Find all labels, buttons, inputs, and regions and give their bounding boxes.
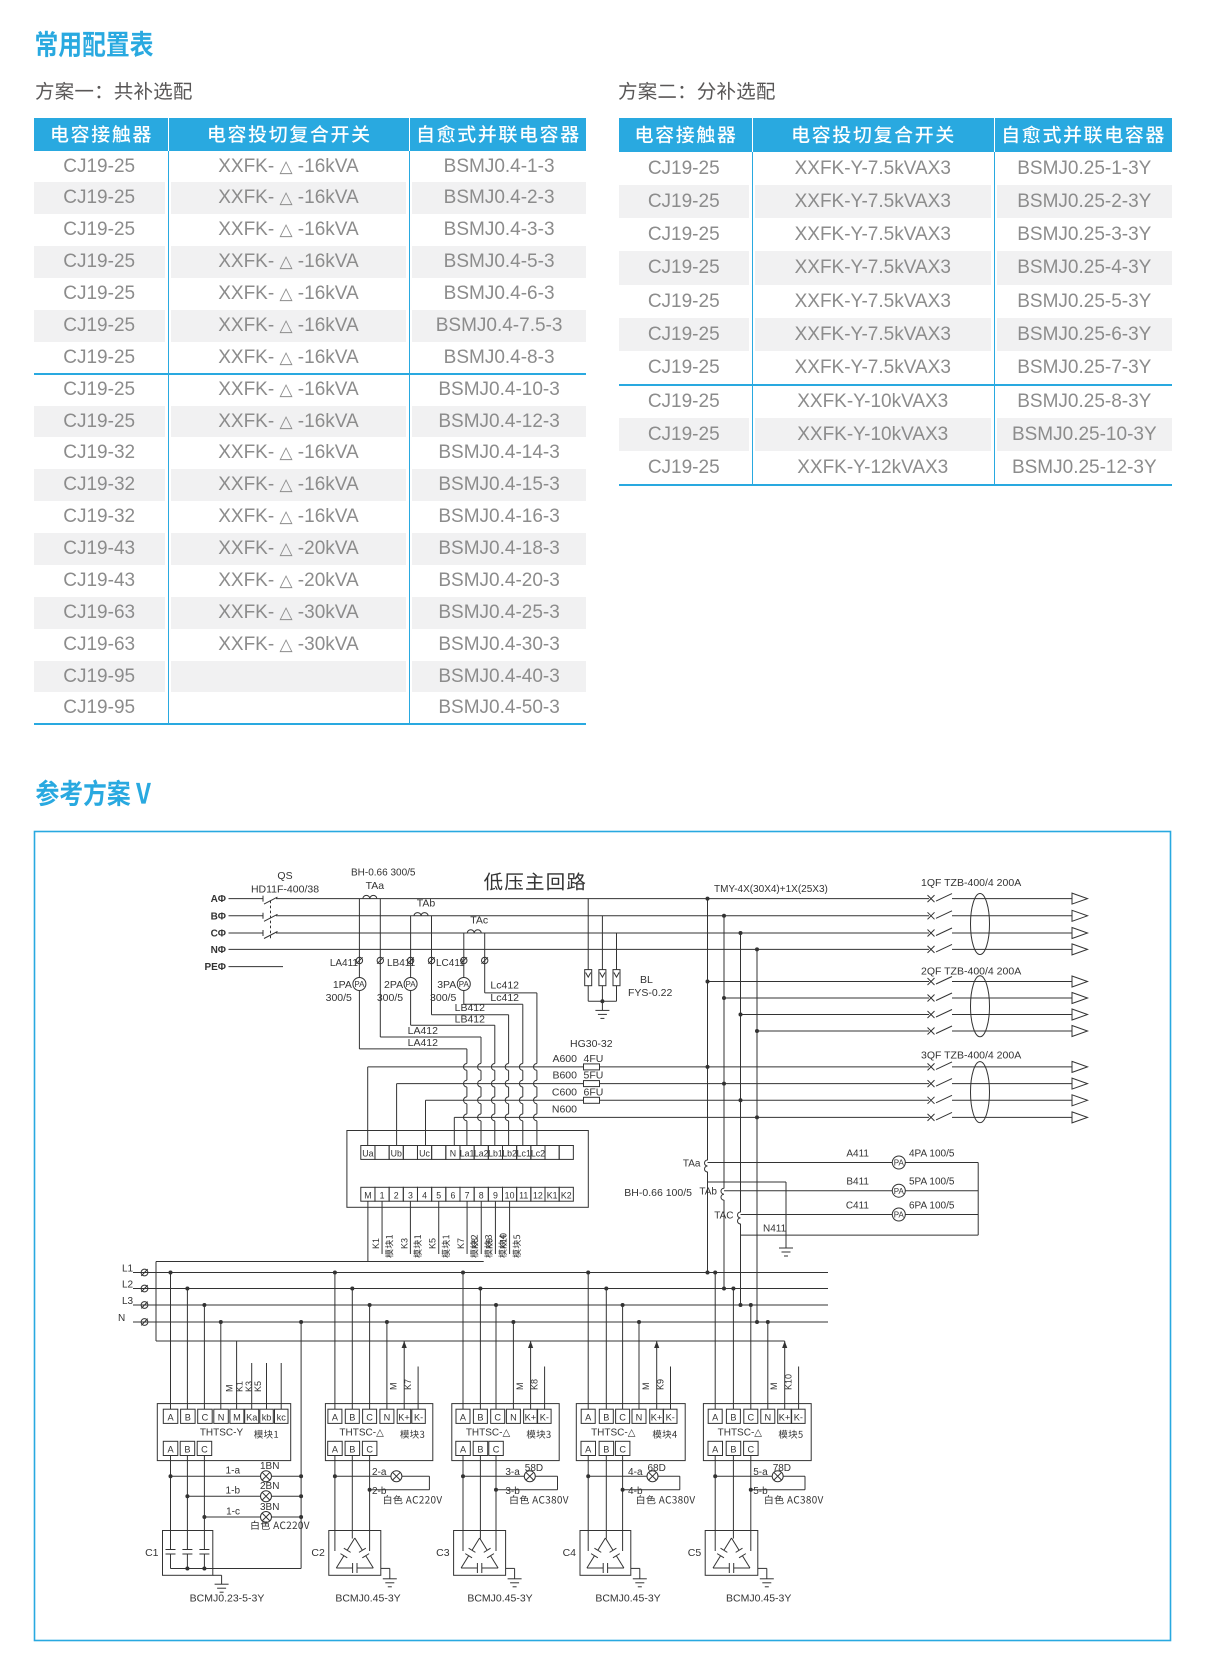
svg-text:HD11F-400/38: HD11F-400/38 (251, 884, 319, 896)
svg-text:LA412: LA412 (408, 1037, 439, 1049)
svg-text:2QF TZB-400/4 200A: 2QF TZB-400/4 200A (921, 966, 1021, 978)
svg-text:N: N (636, 1413, 643, 1423)
svg-text:C411: C411 (846, 1201, 870, 1212)
svg-text:K8: K8 (530, 1379, 540, 1390)
svg-text:A: A (460, 1413, 467, 1423)
svg-text:THTSC-△: THTSC-△ (718, 1428, 763, 1439)
svg-text:K+: K+ (779, 1413, 791, 1423)
svg-text:A: A (167, 1413, 174, 1423)
svg-text:C: C (747, 1413, 754, 1423)
svg-text:4: 4 (422, 1190, 427, 1200)
svg-text:K3: K3 (399, 1238, 409, 1249)
svg-text:300/5: 300/5 (377, 992, 403, 1004)
svg-text:K10: K10 (499, 1233, 509, 1249)
svg-text:C600: C600 (552, 1086, 577, 1098)
svg-text:1-b: 1-b (226, 1486, 241, 1497)
svg-text:N: N (510, 1413, 517, 1423)
svg-text:PA: PA (406, 980, 417, 989)
svg-text:PA: PA (894, 1187, 905, 1196)
svg-text:FYS-0.22: FYS-0.22 (628, 987, 673, 999)
svg-text:BH-0.66 300/5: BH-0.66 300/5 (351, 868, 416, 879)
svg-text:68D: 68D (648, 1463, 666, 1474)
svg-text:LB412: LB412 (455, 1002, 486, 1014)
svg-text:BCMJ0.45-3Y: BCMJ0.45-3Y (335, 1593, 400, 1605)
svg-text:5-b: 5-b (753, 1486, 768, 1497)
svg-text:K-: K- (540, 1413, 549, 1423)
svg-text:Ka: Ka (246, 1413, 258, 1423)
svg-text:TAb: TAb (699, 1187, 717, 1198)
svg-text:M: M (225, 1385, 235, 1393)
svg-text:C: C (619, 1445, 626, 1455)
svg-text:C5: C5 (688, 1547, 702, 1559)
svg-text:LB412: LB412 (455, 1014, 486, 1026)
svg-text:K7: K7 (456, 1238, 466, 1249)
svg-text:BCMJ0.45-3Y: BCMJ0.45-3Y (726, 1593, 791, 1605)
svg-text:PEΦ: PEΦ (204, 962, 226, 973)
svg-text:BCMJ0.45-3Y: BCMJ0.45-3Y (467, 1593, 532, 1605)
svg-text:6PA 100/5: 6PA 100/5 (909, 1201, 955, 1212)
svg-text:K1: K1 (547, 1190, 558, 1200)
svg-text:300/5: 300/5 (430, 992, 456, 1004)
svg-text:La1: La1 (460, 1149, 475, 1159)
svg-text:4-a: 4-a (628, 1467, 643, 1478)
svg-text:C: C (748, 1445, 755, 1455)
svg-text:K-: K- (666, 1413, 675, 1423)
svg-text:C: C (202, 1413, 209, 1423)
svg-text:B: B (349, 1445, 355, 1455)
svg-text:LA412: LA412 (408, 1025, 439, 1037)
svg-text:kc: kc (277, 1413, 287, 1423)
svg-text:La2: La2 (474, 1149, 489, 1159)
svg-text:1QF TZB-400/4 200A: 1QF TZB-400/4 200A (921, 877, 1021, 889)
svg-text:C2: C2 (311, 1547, 325, 1559)
svg-text:B: B (730, 1413, 736, 1423)
svg-text:N: N (118, 1313, 125, 1324)
svg-text:A411: A411 (846, 1149, 869, 1160)
svg-text:Lc1: Lc1 (517, 1149, 531, 1159)
svg-text:B: B (184, 1445, 190, 1455)
svg-text:TMY-4X(30X4)+1X(25X3): TMY-4X(30X4)+1X(25X3) (714, 884, 828, 895)
svg-text:1BN: 1BN (260, 1461, 279, 1472)
svg-text:B: B (477, 1413, 483, 1423)
svg-text:C3: C3 (436, 1547, 450, 1559)
svg-text:3QF TZB-400/4 200A: 3QF TZB-400/4 200A (921, 1050, 1021, 1062)
svg-text:K5: K5 (253, 1381, 263, 1392)
svg-text:THTSC-△: THTSC-△ (466, 1428, 511, 1439)
svg-text:HG30-32: HG30-32 (570, 1038, 613, 1050)
svg-text:CΦ: CΦ (211, 929, 226, 940)
svg-text:TAa: TAa (683, 1159, 701, 1170)
svg-text:C: C (366, 1413, 373, 1423)
svg-text:11: 11 (519, 1190, 528, 1200)
svg-text:A: A (712, 1413, 719, 1423)
svg-text:3PA: 3PA (437, 979, 456, 991)
svg-text:PA: PA (459, 980, 470, 989)
svg-text:N411: N411 (763, 1224, 787, 1235)
svg-text:M: M (769, 1383, 779, 1391)
svg-text:K+: K+ (651, 1413, 663, 1423)
svg-text:PA: PA (354, 980, 365, 989)
svg-text:2: 2 (394, 1190, 399, 1200)
svg-text:K10: K10 (784, 1374, 794, 1390)
svg-text:K2: K2 (561, 1190, 572, 1200)
svg-text:6FU: 6FU (584, 1086, 604, 1098)
svg-text:QS: QS (277, 870, 292, 882)
svg-text:2BN: 2BN (260, 1481, 279, 1492)
svg-text:BCMJ0.45-3Y: BCMJ0.45-3Y (595, 1593, 660, 1605)
svg-text:2-a: 2-a (372, 1467, 387, 1478)
svg-text:A: A (332, 1413, 339, 1423)
svg-text:78D: 78D (773, 1463, 791, 1474)
svg-text:B: B (603, 1445, 609, 1455)
svg-text:C1: C1 (145, 1547, 159, 1559)
svg-text:K5: K5 (428, 1238, 438, 1249)
svg-text:kb: kb (262, 1413, 272, 1423)
svg-text:5PA 100/5: 5PA 100/5 (909, 1177, 955, 1188)
svg-text:9: 9 (493, 1190, 498, 1200)
svg-text:THTSC-△: THTSC-△ (591, 1428, 636, 1439)
svg-text:Lc2: Lc2 (531, 1149, 545, 1159)
svg-text:A: A (585, 1445, 592, 1455)
svg-text:1-c: 1-c (226, 1507, 240, 1518)
svg-text:PA: PA (894, 1159, 905, 1168)
svg-text:BH-0.66 100/5: BH-0.66 100/5 (624, 1187, 692, 1199)
svg-text:N: N (764, 1413, 771, 1423)
svg-text:K1: K1 (371, 1238, 381, 1249)
svg-text:1PA: 1PA (333, 979, 352, 991)
svg-text:6: 6 (450, 1190, 455, 1200)
svg-text:C4: C4 (563, 1547, 577, 1559)
svg-text:B411: B411 (846, 1177, 869, 1188)
svg-text:A: A (167, 1445, 174, 1455)
svg-text:L3: L3 (122, 1296, 134, 1307)
svg-text:B: B (349, 1413, 355, 1423)
svg-text:M: M (364, 1190, 371, 1200)
svg-text:4-b: 4-b (628, 1486, 643, 1497)
svg-text:Ua: Ua (362, 1149, 373, 1159)
svg-text:N: N (218, 1413, 225, 1423)
svg-text:BL: BL (640, 974, 653, 986)
svg-text:BΦ: BΦ (211, 911, 226, 922)
svg-text:3: 3 (408, 1190, 413, 1200)
svg-text:BCMJ0.23-5-3Y: BCMJ0.23-5-3Y (190, 1593, 265, 1605)
svg-text:Lb1: Lb1 (488, 1149, 503, 1159)
svg-text:K-: K- (794, 1413, 803, 1423)
svg-text:5FU: 5FU (584, 1070, 604, 1082)
svg-text:Lb2: Lb2 (502, 1149, 517, 1159)
svg-text:M: M (389, 1383, 399, 1391)
svg-text:M: M (641, 1383, 651, 1391)
svg-text:K9: K9 (656, 1379, 666, 1390)
svg-text:3-b: 3-b (505, 1486, 520, 1497)
svg-text:8: 8 (479, 1190, 484, 1200)
svg-text:B600: B600 (552, 1070, 577, 1082)
svg-text:N600: N600 (552, 1103, 577, 1115)
svg-text:TAb: TAb (417, 897, 436, 909)
svg-text:TAc: TAc (470, 915, 488, 927)
svg-text:C: C (494, 1413, 501, 1423)
svg-text:Lc412: Lc412 (490, 992, 519, 1004)
svg-text:K+: K+ (398, 1413, 410, 1423)
svg-text:K-: K- (414, 1413, 423, 1423)
svg-text:TAC: TAC (714, 1211, 733, 1222)
svg-text:N: N (384, 1413, 391, 1423)
svg-text:NΦ: NΦ (211, 945, 226, 956)
svg-text:C: C (366, 1445, 373, 1455)
svg-text:A: A (332, 1445, 339, 1455)
svg-text:A: A (585, 1413, 592, 1423)
svg-text:A: A (460, 1445, 467, 1455)
svg-text:THTSC-△: THTSC-△ (339, 1428, 384, 1439)
svg-text:C: C (201, 1445, 208, 1455)
svg-text:B: B (730, 1445, 736, 1455)
svg-text:B: B (477, 1445, 483, 1455)
svg-text:5: 5 (436, 1190, 441, 1200)
svg-text:K9: K9 (484, 1238, 494, 1249)
svg-text:5-a: 5-a (753, 1467, 768, 1478)
svg-text:2PA: 2PA (384, 979, 403, 991)
svg-text:Ub: Ub (391, 1149, 402, 1159)
svg-text:300/5: 300/5 (326, 992, 352, 1004)
svg-text:B: B (603, 1413, 609, 1423)
svg-text:K+: K+ (525, 1413, 537, 1423)
svg-text:K7: K7 (403, 1379, 413, 1390)
svg-text:L2: L2 (122, 1280, 134, 1291)
svg-text:58D: 58D (525, 1463, 543, 1474)
svg-text:LA411: LA411 (330, 958, 359, 969)
svg-text:2-b: 2-b (372, 1486, 387, 1497)
svg-text:M: M (233, 1413, 241, 1423)
svg-text:N: N (450, 1149, 456, 1159)
svg-text:A: A (712, 1445, 719, 1455)
svg-text:L1: L1 (122, 1264, 134, 1275)
svg-text:3-a: 3-a (505, 1467, 520, 1478)
svg-text:Lc412: Lc412 (490, 980, 519, 992)
svg-text:B: B (185, 1413, 191, 1423)
svg-text:PA: PA (894, 1211, 905, 1220)
svg-text:AΦ: AΦ (211, 894, 226, 905)
svg-text:Uc: Uc (419, 1149, 430, 1159)
svg-text:M: M (515, 1383, 525, 1391)
svg-text:TAa: TAa (366, 880, 385, 892)
svg-text:K8: K8 (470, 1238, 480, 1249)
svg-text:C: C (493, 1445, 500, 1455)
svg-text:C: C (619, 1413, 626, 1423)
svg-text:4PA 100/5: 4PA 100/5 (909, 1149, 955, 1160)
svg-text:4FU: 4FU (584, 1053, 604, 1065)
svg-text:10: 10 (505, 1190, 515, 1200)
svg-text:THTSC-Y: THTSC-Y (200, 1428, 244, 1439)
svg-text:3BN: 3BN (260, 1502, 279, 1513)
svg-text:1: 1 (380, 1190, 385, 1200)
svg-text:A600: A600 (552, 1053, 577, 1065)
svg-text:1-a: 1-a (226, 1466, 241, 1477)
svg-text:7: 7 (465, 1190, 470, 1200)
svg-text:12: 12 (533, 1190, 543, 1200)
